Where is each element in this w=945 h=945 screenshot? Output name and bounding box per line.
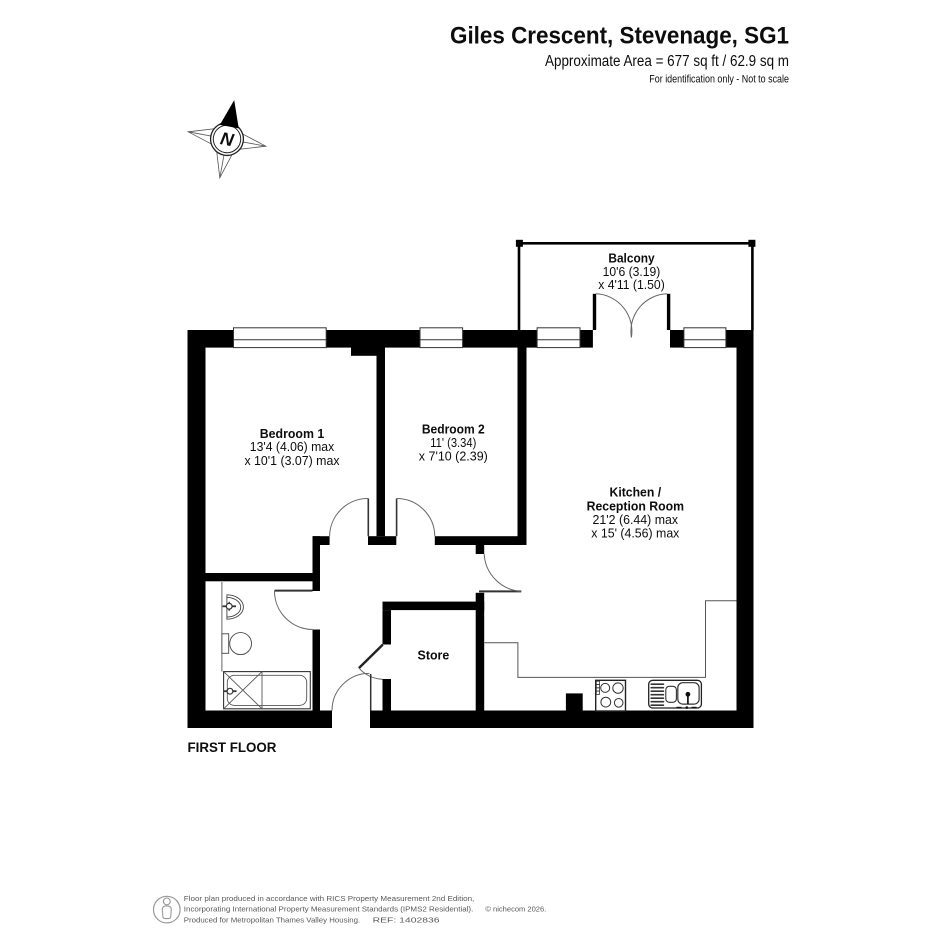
svg-text:x 4'11 (1.50): x 4'11 (1.50) — [598, 277, 665, 292]
svg-text:Kitchen /: Kitchen / — [610, 485, 662, 500]
svg-text:Store: Store — [418, 648, 450, 663]
svg-text:© nichecom 2026.: © nichecom 2026. — [485, 905, 546, 914]
svg-text:Incorporating International Pr: Incorporating International Property Mea… — [184, 905, 474, 914]
svg-text:For identification only - Not: For identification only - Not to scale — [649, 74, 789, 86]
svg-text:FIRST FLOOR: FIRST FLOOR — [188, 740, 277, 755]
svg-text:x 7'10 (2.39): x 7'10 (2.39) — [419, 449, 488, 464]
svg-text:Giles Crescent, Stevenage, SG1: Giles Crescent, Stevenage, SG1 — [450, 24, 789, 50]
svg-text:Floor plan produced in accorda: Floor plan produced in accordance with R… — [184, 894, 475, 903]
svg-text:Approximate Area = 677 sq ft /: Approximate Area = 677 sq ft / 62.9 sq m — [545, 53, 789, 70]
svg-text:Produced for Metropolitan Tham: Produced for Metropolitan Thames Valley … — [184, 916, 360, 925]
svg-text:x 15' (4.56) max: x 15' (4.56) max — [591, 525, 680, 540]
svg-text:REF: 1402836: REF: 1402836 — [373, 916, 440, 925]
svg-text:x 10'1 (3.07) max: x 10'1 (3.07) max — [244, 453, 340, 468]
